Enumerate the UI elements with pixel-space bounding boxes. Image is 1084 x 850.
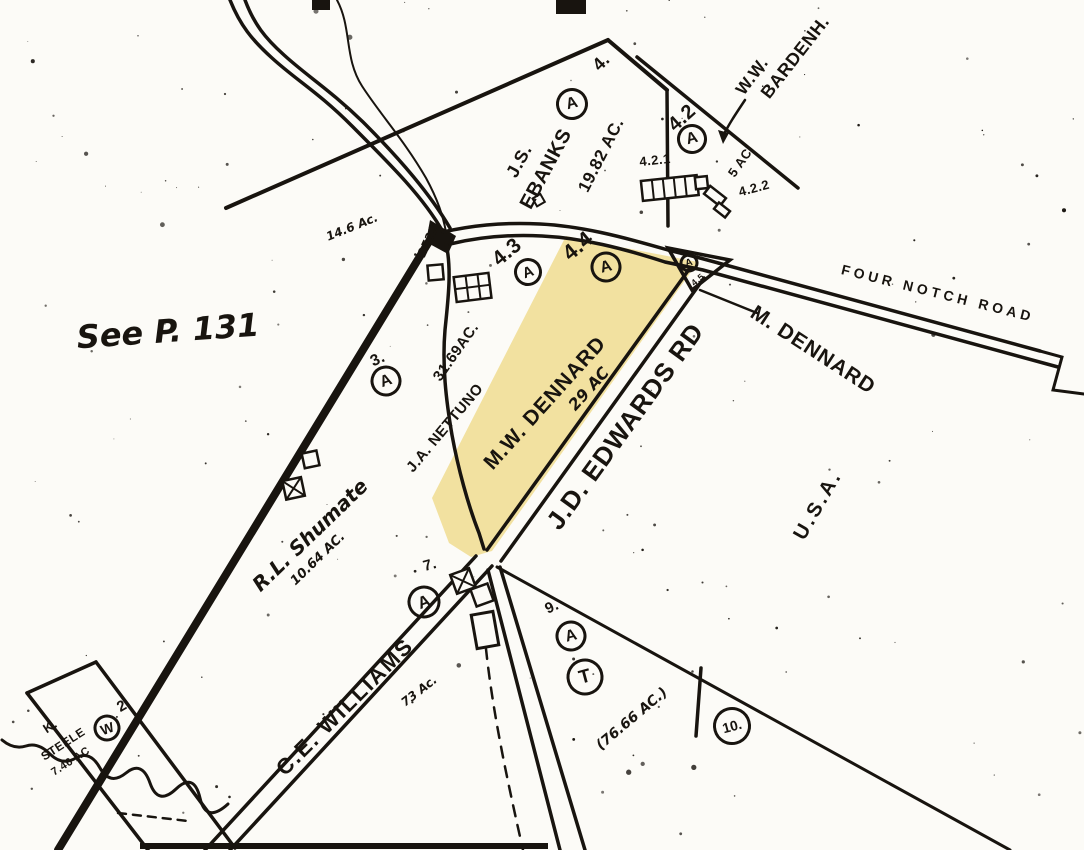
box-symbol-parcel3	[302, 450, 320, 468]
ebanks-42-divider	[667, 90, 668, 226]
top-edge-building-1	[312, 0, 330, 10]
four-notch-road-jog	[1040, 351, 1084, 394]
small-building-422b	[714, 203, 730, 218]
barn-421	[641, 175, 699, 201]
williams-road-line-e	[230, 566, 492, 850]
main-thick-road	[58, 230, 436, 850]
south-road-line-a	[488, 570, 560, 850]
map-linework	[0, 0, 1084, 850]
winding-road-line-n	[230, 0, 443, 232]
road-junction-blob	[426, 220, 456, 254]
stream-dashes	[118, 813, 188, 821]
building-parcel7	[471, 611, 499, 648]
junction-building	[427, 264, 443, 280]
ebanks-north-corner	[608, 40, 667, 90]
dashed-creek	[484, 628, 523, 850]
bardenh-boundary	[637, 57, 798, 188]
bardenh-leader	[723, 100, 745, 136]
parcel-map: See P. 1314.J.S.EBANKS19.82 AC.4.24.2.15…	[0, 0, 1084, 850]
ebanks-small-building	[533, 194, 545, 206]
small-building-422a	[704, 186, 726, 206]
barn-421-annex	[695, 176, 708, 189]
williams-road-line-w	[205, 556, 476, 850]
steele-parcel-top-line	[27, 662, 96, 693]
top-edge-building-2	[556, 0, 586, 14]
scan-artifact-bar	[140, 843, 548, 849]
m-dennard-leader	[700, 290, 757, 313]
